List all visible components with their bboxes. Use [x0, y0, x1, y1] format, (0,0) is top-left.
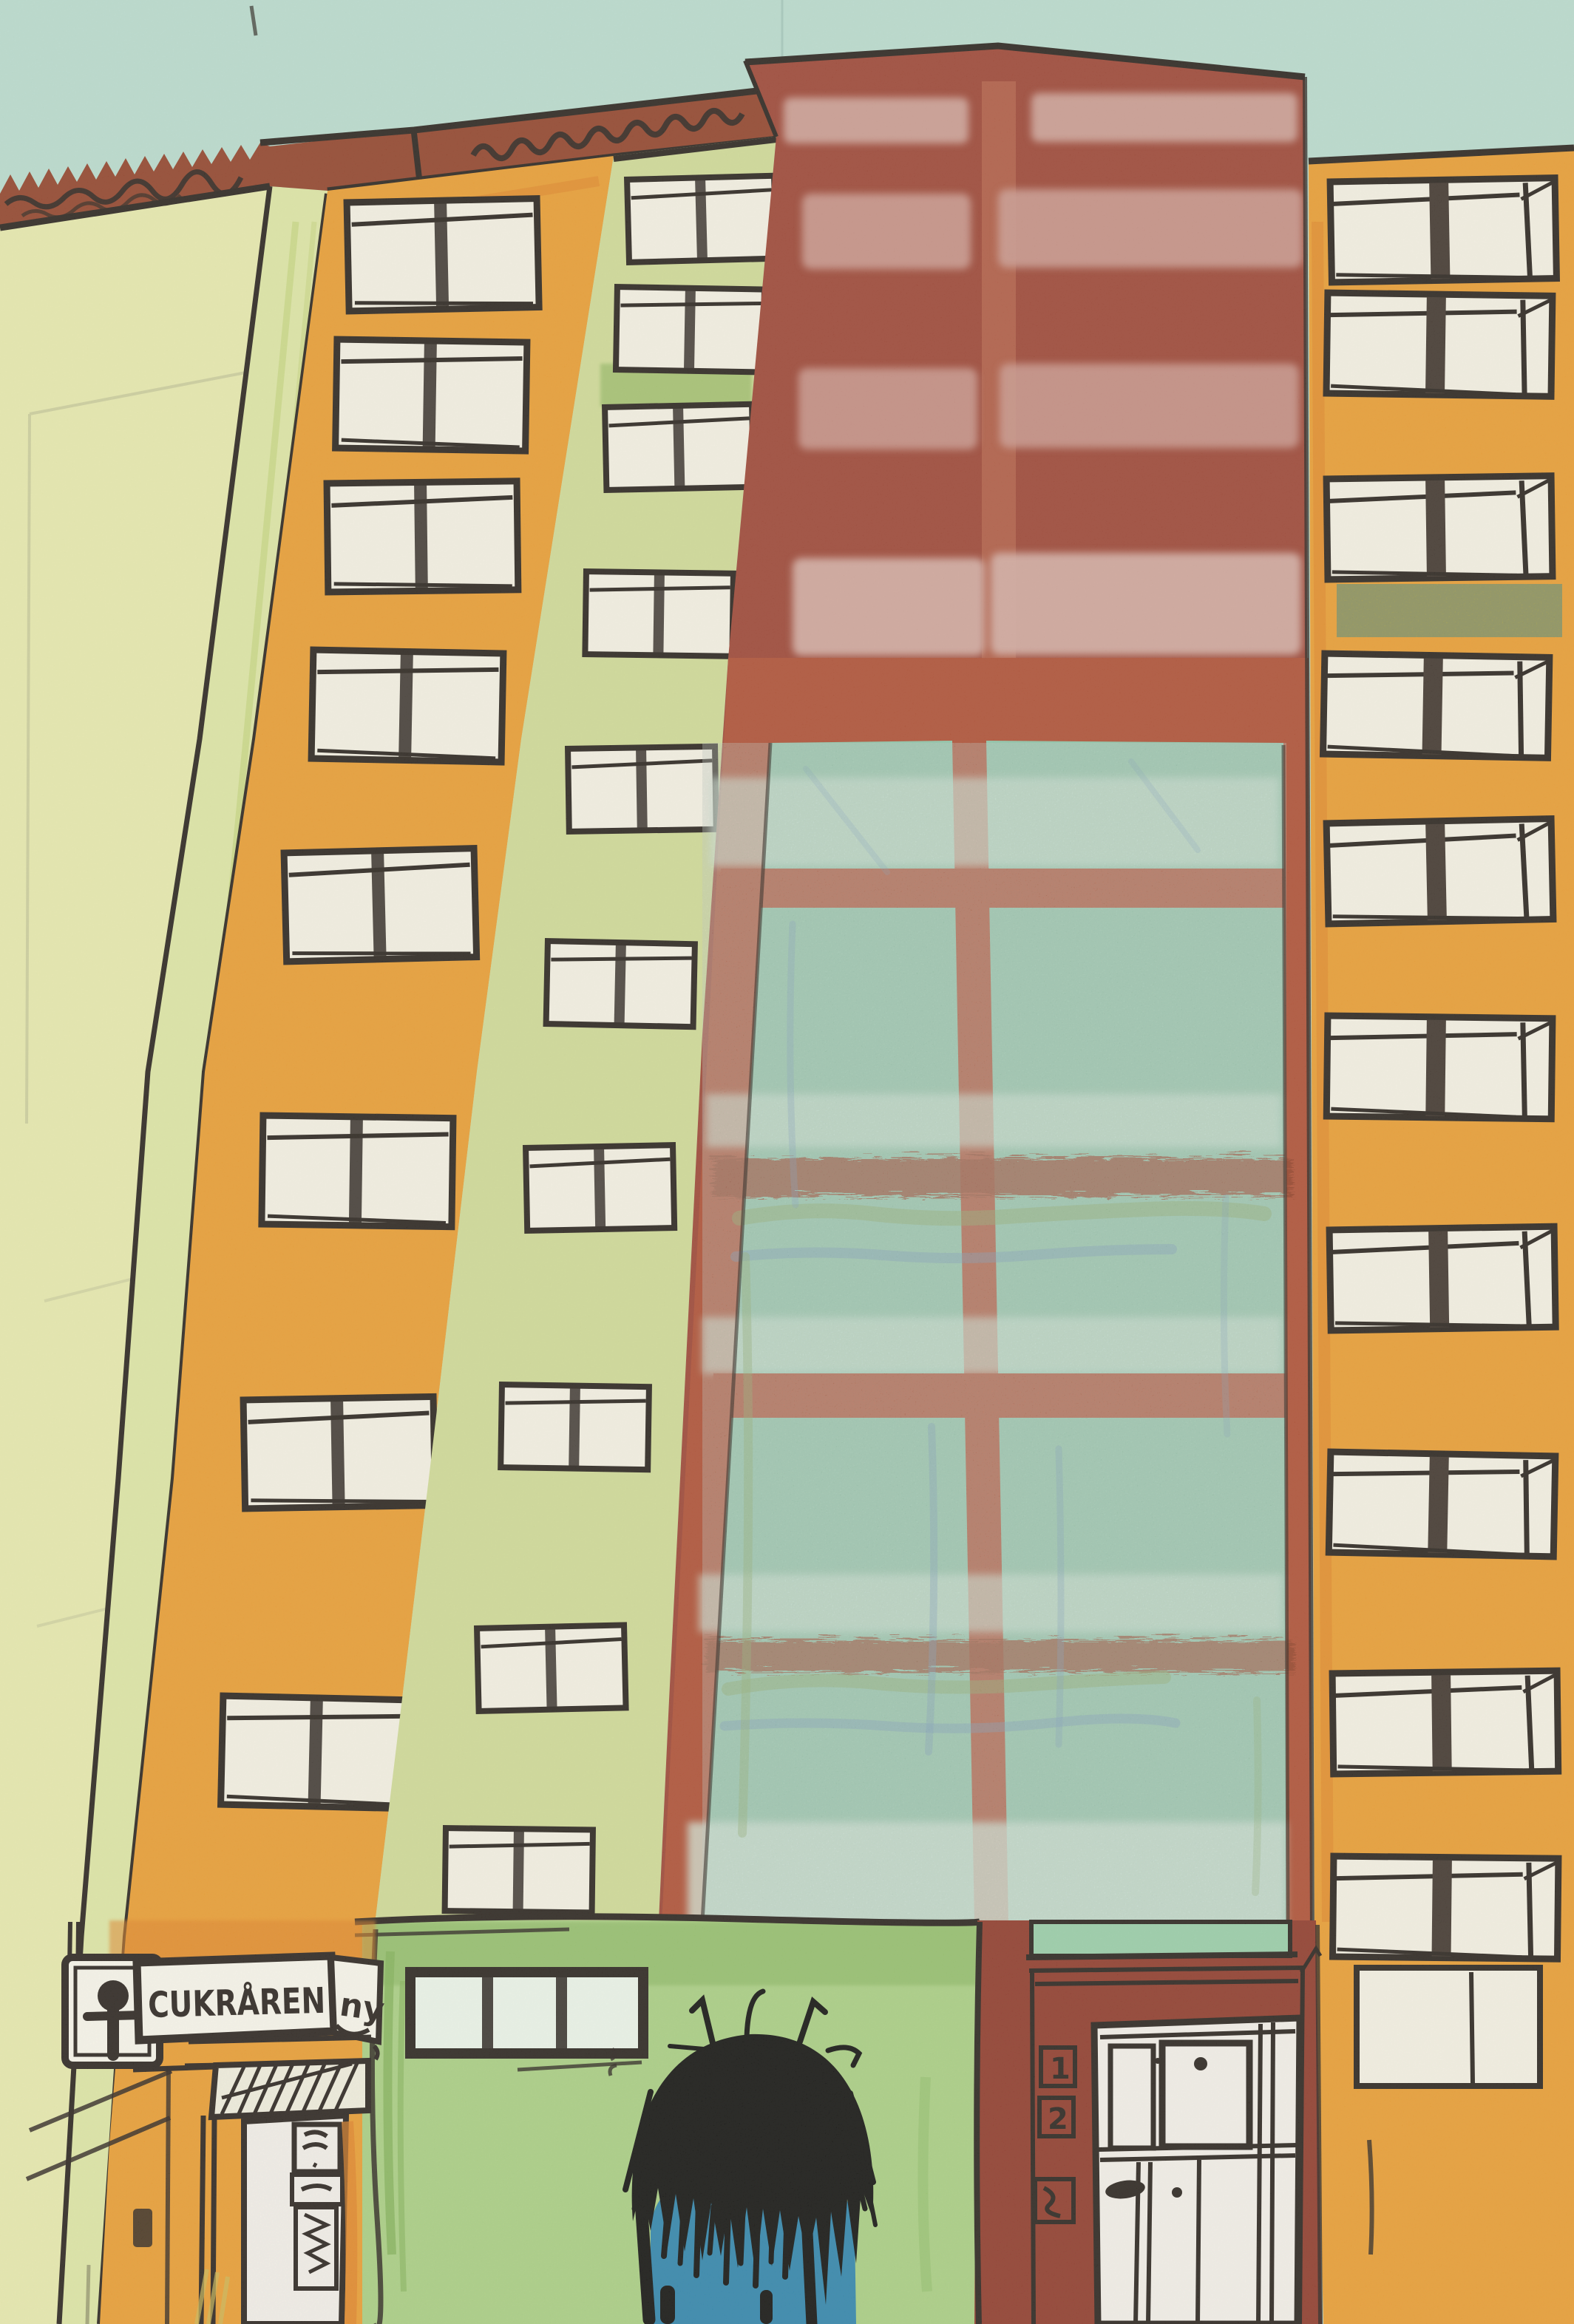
painting-buildings-street: CUKRÅREN ny — [0, 0, 1574, 2324]
paper-texture-dark — [0, 0, 1574, 2324]
